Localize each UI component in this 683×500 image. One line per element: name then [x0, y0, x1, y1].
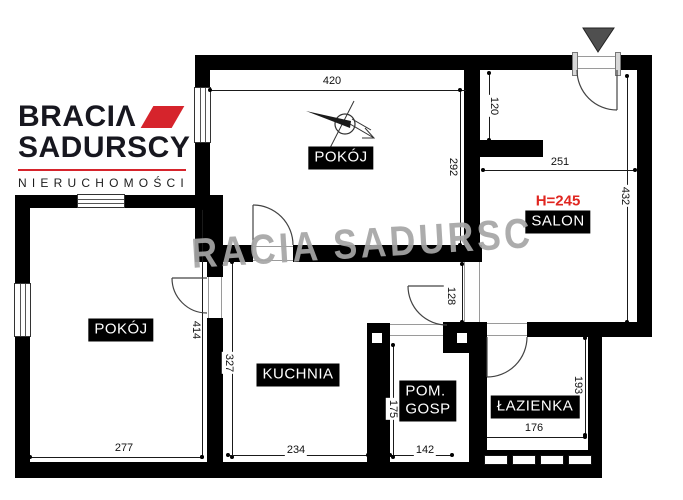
logo-red-underline [18, 169, 186, 171]
column-symbol [370, 331, 384, 345]
logo-brand-line2: SADURSCY [18, 132, 203, 163]
dim-label-292: 292 [446, 156, 458, 178]
door-threshold-line [577, 68, 617, 69]
dim-label-234: 234 [285, 445, 307, 457]
utility-door-arc [408, 286, 447, 325]
wall-segment [207, 318, 223, 462]
door-threshold-line [487, 323, 527, 324]
dim-label-120: 120 [487, 95, 499, 117]
room-label-pom-gosp-line1: POM. [405, 383, 450, 401]
dim-line [462, 264, 463, 322]
dim-line [210, 90, 468, 91]
wall-segment [195, 55, 577, 70]
logo-tagline: NIERUCHOMOŚCI [18, 176, 203, 190]
door-threshold-line [577, 56, 617, 57]
dim-label-277: 277 [113, 443, 135, 455]
floor-plan-canvas: BRACIΛ SADURSCY NIERUCHOMOŚCI [0, 0, 683, 500]
window-pane-line [20, 284, 21, 336]
door-threshold-line [221, 277, 222, 318]
window-pane-line [205, 88, 206, 142]
room-label-pom-gosp: POM. GOSP [399, 381, 456, 422]
railing-segment [568, 455, 592, 465]
door-jamb [615, 52, 621, 76]
window-pane-line [78, 199, 124, 200]
room-label-salon: SALON [525, 211, 590, 234]
window-symbol [77, 194, 125, 208]
door-threshold-line [208, 277, 209, 318]
column-symbol [455, 331, 469, 345]
room-label-lazienka: ŁAZIENKA [491, 396, 580, 419]
room-label-kuchnia: KUCHNIA [256, 364, 339, 387]
dim-line [30, 457, 202, 458]
dim-label-414: 414 [189, 319, 201, 341]
entrance-arrow-icon [583, 28, 614, 52]
wall-segment [637, 55, 652, 337]
passage-line [479, 262, 480, 322]
passage-line [464, 262, 465, 322]
bathroom-door-arc [487, 337, 527, 377]
wall-segment [15, 195, 30, 283]
wall-segment [195, 55, 210, 87]
passage-line [390, 324, 443, 325]
dim-label-420: 420 [321, 76, 343, 88]
window-pane-line [78, 203, 124, 204]
dim-label-432: 432 [618, 185, 630, 207]
railing-segment [540, 455, 564, 465]
door-threshold-line [487, 335, 527, 336]
window-pane-line [25, 284, 26, 336]
north-arrow-icon [306, 101, 374, 148]
room-label-pom-gosp-line2: GOSP [405, 401, 450, 419]
door-jamb [572, 52, 578, 76]
dim-label-176: 176 [523, 423, 545, 435]
dim-label-193: 193 [571, 374, 583, 396]
dim-label-128: 128 [444, 285, 456, 307]
wall-segment [125, 195, 223, 208]
railing-segment [484, 455, 508, 465]
wall-segment [464, 140, 543, 157]
window-symbol [14, 283, 31, 337]
dim-line [485, 437, 585, 438]
dim-label-327: 327 [222, 352, 234, 374]
entrance-door-arc [577, 70, 617, 110]
passage-line [390, 335, 443, 336]
watermark-text: RACIA SADURSC [190, 209, 535, 278]
dim-label-142: 142 [414, 445, 436, 457]
room-label-pokoj-left: POKÓJ [88, 319, 153, 342]
dim-line [483, 170, 635, 171]
railing-segment [512, 455, 536, 465]
dim-label-251: 251 [549, 157, 571, 169]
wall-segment [15, 462, 480, 478]
dim-line [585, 338, 586, 435]
room-label-pokoj-top: POKÓJ [308, 147, 373, 170]
dim-label-175: 175 [386, 398, 398, 420]
agency-logo: BRACIΛ SADURSCY NIERUCHOMOŚCI [18, 101, 203, 190]
ceiling-height-note: H=245 [534, 193, 583, 210]
